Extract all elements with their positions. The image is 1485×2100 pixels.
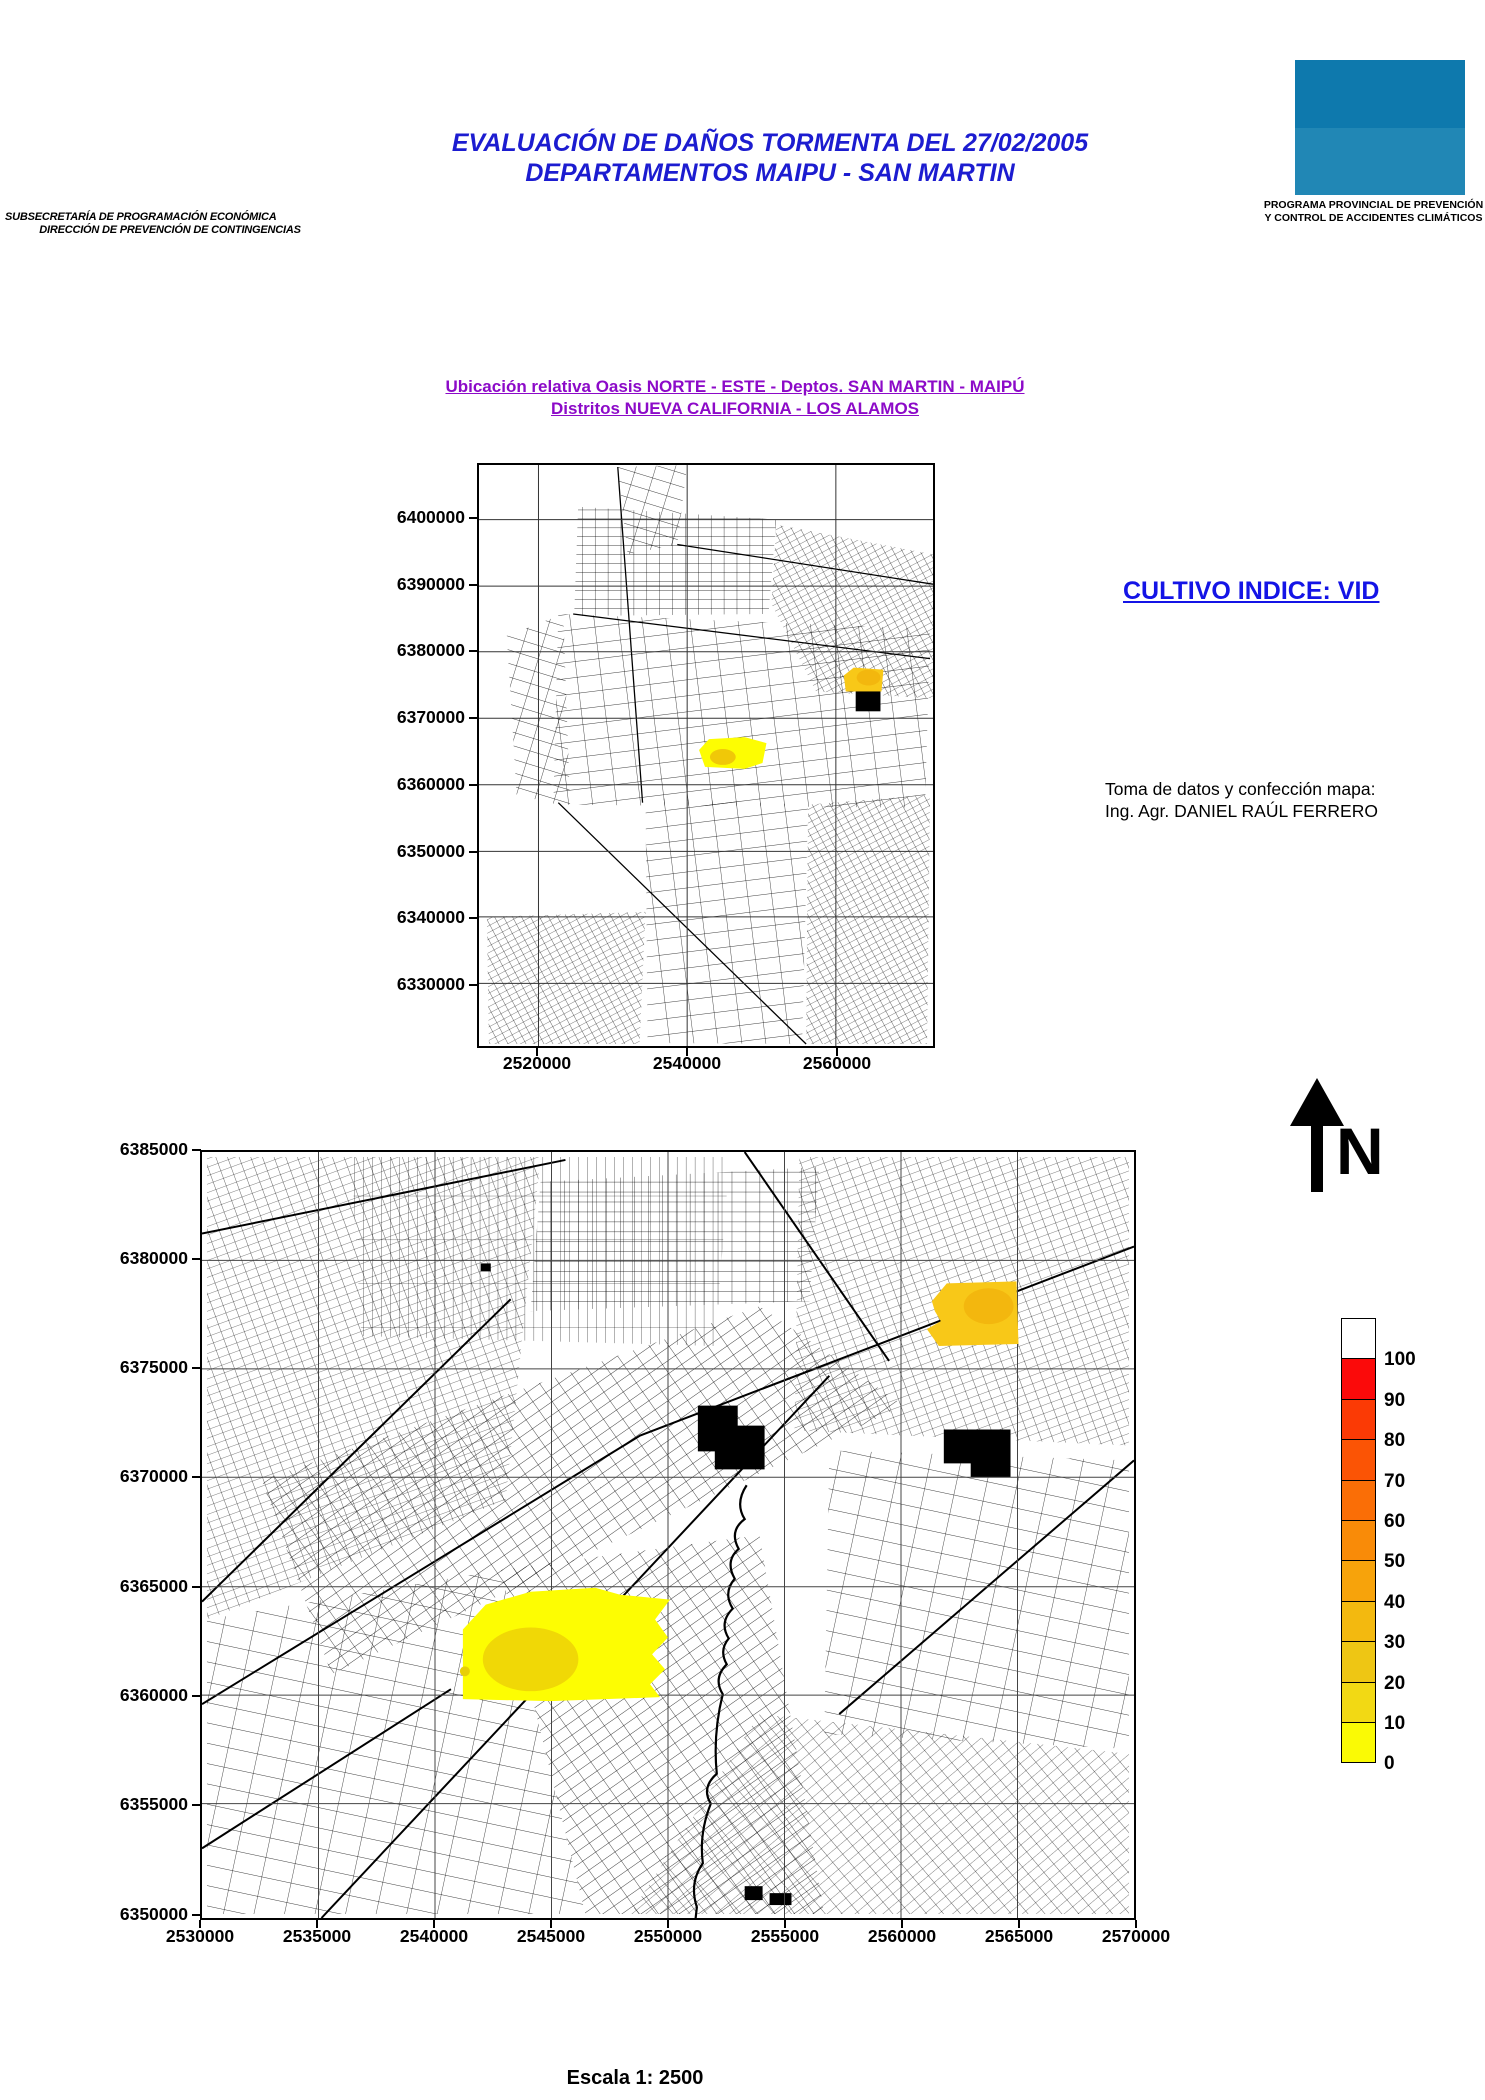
legend-tick-label: 80 <box>1384 1430 1405 1452</box>
agency-line1: SUBSECRETARÍA DE PROGRAMACIÓN ECONÓMICA <box>5 211 335 224</box>
overview-map-y-tick-mark <box>469 984 478 986</box>
detail-map-y-tick-label: 6380000 <box>68 1248 188 1269</box>
map-credit-line2: Ing. Agr. DANIEL RAÚL FERRERO <box>1105 800 1465 822</box>
detail-map-y-tick-label: 6365000 <box>68 1576 188 1597</box>
detail-map-x-tick-mark <box>784 1920 786 1928</box>
legend-tick-label: 40 <box>1384 1592 1405 1614</box>
location-subtitle-line1: Ubicación relativa Oasis NORTE - ESTE - … <box>290 376 1180 398</box>
detail-map-x-tick-mark <box>550 1920 552 1928</box>
detail-map-x-tick-label: 2530000 <box>140 1926 260 1947</box>
program-caption: PROGRAMA PROVINCIAL DE PREVENCIÓN Y CONT… <box>1262 199 1485 224</box>
detail-map-y-tick-mark <box>192 1367 201 1369</box>
legend-color-box <box>1341 1722 1376 1763</box>
overview-map-y-tick-label: 6390000 <box>345 574 465 595</box>
page-title: EVALUACIÓN DE DAÑOS TORMENTA DEL 27/02/2… <box>330 128 1210 188</box>
overview-map-y-tick-mark <box>469 650 478 652</box>
legend-color-box <box>1341 1358 1376 1399</box>
detail-map-x-tick-label: 2555000 <box>725 1926 845 1947</box>
detail-map-y-tick-mark <box>192 1258 201 1260</box>
detail-map-y-tick-label: 6375000 <box>68 1357 188 1378</box>
map-document-page: SUBSECRETARÍA DE PROGRAMACIÓN ECONÓMICA … <box>0 0 1485 2100</box>
legend-color-box <box>1341 1399 1376 1440</box>
overview-map-x-tick-label: 2520000 <box>477 1053 597 1074</box>
legend-tick-label: 100 <box>1384 1349 1416 1371</box>
detail-map-x-tick-mark <box>1135 1920 1137 1928</box>
legend-color-box <box>1341 1318 1376 1359</box>
detail-map-x-tick-label: 2550000 <box>608 1926 728 1947</box>
agency-header: SUBSECRETARÍA DE PROGRAMACIÓN ECONÓMICA … <box>5 211 335 237</box>
map-credit: Toma de datos y confección mapa: Ing. Ag… <box>1105 778 1465 822</box>
detail-map-canvas <box>202 1152 1134 1918</box>
detail-map-y-tick-label: 6350000 <box>68 1904 188 1925</box>
detail-map-x-tick-label: 2570000 <box>1076 1926 1196 1947</box>
detail-map-y-tick-mark <box>192 1149 201 1151</box>
overview-map-y-tick-label: 6400000 <box>345 507 465 528</box>
overview-map-x-tick-label: 2540000 <box>627 1053 747 1074</box>
detail-map-x-tick-mark <box>199 1920 201 1928</box>
overview-map-y-tick-label: 6380000 <box>345 640 465 661</box>
detail-map-x-tick-mark <box>433 1920 435 1928</box>
legend-tick-label: 20 <box>1384 1673 1405 1695</box>
program-logo-bottom <box>1295 128 1465 196</box>
detail-map-y-tick-mark <box>192 1914 201 1916</box>
page-title-line1: EVALUACIÓN DE DAÑOS TORMENTA DEL 27/02/2… <box>330 128 1210 158</box>
location-subtitle: Ubicación relativa Oasis NORTE - ESTE - … <box>290 376 1180 420</box>
detail-map-x-tick-label: 2560000 <box>842 1926 962 1947</box>
overview-map-y-tick-mark <box>469 917 478 919</box>
detail-map-y-tick-label: 6355000 <box>68 1794 188 1815</box>
detail-map-y-tick-mark <box>192 1804 201 1806</box>
detail-map-y-tick-label: 6370000 <box>68 1466 188 1487</box>
detail-map-frame <box>200 1150 1136 1920</box>
detail-map-x-tick-mark <box>1018 1920 1020 1928</box>
overview-map-y-tick-label: 6370000 <box>345 707 465 728</box>
detail-map-x-tick-label: 2535000 <box>257 1926 377 1947</box>
overview-map-y-tick-mark <box>469 784 478 786</box>
overview-map-y-tick-label: 6330000 <box>345 974 465 995</box>
overview-map-frame <box>477 463 935 1048</box>
program-caption-line1: PROGRAMA PROVINCIAL DE PREVENCIÓN <box>1262 199 1485 212</box>
legend-tick-label: 60 <box>1384 1511 1405 1533</box>
map-credit-line1: Toma de datos y confección mapa: <box>1105 778 1465 800</box>
legend-color-box <box>1341 1560 1376 1601</box>
legend-color-box <box>1341 1480 1376 1521</box>
legend-color-box <box>1341 1682 1376 1723</box>
overview-map-y-tick-mark <box>469 717 478 719</box>
detail-map-y-tick-mark <box>192 1586 201 1588</box>
legend-tick-label: 30 <box>1384 1632 1405 1654</box>
location-subtitle-line2: Distritos NUEVA CALIFORNIA - LOS ALAMOS <box>290 398 1180 420</box>
overview-map-y-tick-label: 6340000 <box>345 907 465 928</box>
detail-map-x-tick-mark <box>667 1920 669 1928</box>
page-title-line2: DEPARTAMENTOS MAIPU - SAN MARTIN <box>330 158 1210 188</box>
detail-map-y-tick-mark <box>192 1476 201 1478</box>
north-letter: N <box>1336 1118 1384 1184</box>
program-caption-line2: Y CONTROL DE ACCIDENTES CLIMÁTICOS <box>1262 212 1485 225</box>
program-logo <box>1295 60 1465 195</box>
overview-map-y-tick-label: 6360000 <box>345 774 465 795</box>
legend-tick-label: 0 <box>1384 1753 1395 1775</box>
detail-map-x-tick-label: 2565000 <box>959 1926 1079 1947</box>
overview-map-canvas <box>479 465 933 1046</box>
detail-map-y-tick-mark <box>192 1695 201 1697</box>
legend-color-box <box>1341 1439 1376 1480</box>
overview-map-x-tick-label: 2560000 <box>777 1053 897 1074</box>
overview-map-y-tick-mark <box>469 584 478 586</box>
overview-map-y-tick-mark <box>469 517 478 519</box>
overview-map-y-tick-label: 6350000 <box>345 841 465 862</box>
legend-tick-label: 10 <box>1384 1713 1405 1735</box>
legend-color-box <box>1341 1520 1376 1561</box>
legend-tick-label: 90 <box>1384 1390 1405 1412</box>
detail-map-x-tick-mark <box>316 1920 318 1928</box>
detail-map-x-tick-mark <box>901 1920 903 1928</box>
scale-caption: Escala 1: 2500 <box>450 2067 820 2090</box>
overview-map-x-tick-mark <box>836 1048 838 1056</box>
overview-map-y-tick-mark <box>469 851 478 853</box>
detail-map-x-tick-label: 2545000 <box>491 1926 611 1947</box>
overview-map-x-tick-mark <box>686 1048 688 1056</box>
crop-index-label: CULTIVO INDICE: VID <box>1123 577 1379 606</box>
agency-line2: DIRECCIÓN DE PREVENCIÓN DE CONTINGENCIAS <box>5 224 335 237</box>
legend-tick-label: 70 <box>1384 1471 1405 1493</box>
overview-map-x-tick-mark <box>536 1048 538 1056</box>
detail-map-x-tick-label: 2540000 <box>374 1926 494 1947</box>
legend-color-box <box>1341 1641 1376 1682</box>
detail-map-y-tick-label: 6385000 <box>68 1139 188 1160</box>
program-logo-top <box>1295 60 1465 128</box>
legend-tick-label: 50 <box>1384 1551 1405 1573</box>
legend-color-box <box>1341 1601 1376 1642</box>
detail-map-y-tick-label: 6360000 <box>68 1685 188 1706</box>
